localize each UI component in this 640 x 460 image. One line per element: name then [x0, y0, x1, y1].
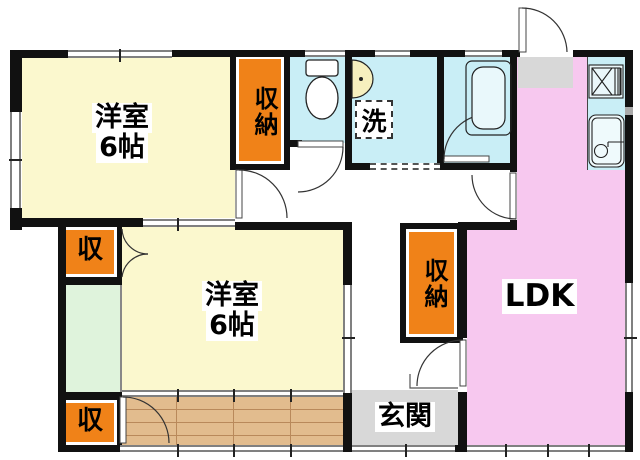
closet-tall-2-label: 収納 [415, 242, 447, 326]
room-name: 洋室 [202, 281, 262, 311]
closet-tall-1-label: 収納 [245, 70, 277, 154]
door-arc [239, 170, 287, 218]
wall [58, 277, 122, 285]
door-leaf [510, 173, 516, 219]
window [305, 50, 345, 57]
wall [625, 50, 633, 107]
entrance-label: 玄関 [355, 402, 455, 432]
ldk-label: LDK [487, 279, 592, 314]
wall [440, 163, 517, 170]
bedroom1-label: 洋室 6帖 [47, 103, 197, 163]
veranda-wood-floor [120, 397, 348, 445]
door-arc [298, 147, 343, 192]
wall [235, 222, 352, 230]
wall [58, 220, 66, 452]
room-size: 6帖 [96, 133, 148, 163]
window [465, 50, 502, 57]
window [625, 283, 633, 392]
bathroom-floor [444, 57, 510, 163]
room-size: 6帖 [206, 311, 258, 341]
kitchen-counter [587, 57, 627, 170]
wall [625, 115, 633, 283]
wall [343, 393, 352, 452]
wall [10, 50, 22, 112]
wall [58, 392, 122, 400]
wall [10, 218, 143, 227]
wall [510, 50, 517, 172]
ldk-floor-main [467, 230, 627, 447]
window [375, 50, 410, 57]
wall [58, 445, 120, 452]
door-leaf [519, 8, 526, 52]
door-leaf [460, 340, 466, 386]
wall [437, 50, 444, 163]
wall [458, 392, 467, 452]
wall [172, 50, 305, 57]
sliding-door [370, 163, 440, 170]
door-leaf [236, 170, 242, 218]
floor-plan: 洋室 6帖 洋室 6帖 LDK 玄関 洗 収納 収納 収 収 [0, 0, 640, 460]
wall [460, 222, 467, 338]
backdoor-landing [518, 57, 573, 88]
window [120, 445, 343, 452]
kitchen-vent [625, 107, 633, 115]
bedroom2-label: 洋室 6帖 [157, 281, 307, 341]
alcove-floor [66, 285, 122, 392]
door-arc [472, 175, 516, 219]
wall [343, 222, 352, 285]
room-name: 洋室 [92, 103, 152, 133]
wall [345, 50, 352, 170]
door-arc [522, 8, 567, 52]
sliding-door [343, 285, 352, 393]
alcove-edge [120, 285, 122, 392]
door-arc [417, 340, 463, 386]
sliding-door [122, 390, 343, 397]
sliding-door [143, 219, 235, 227]
wall [573, 50, 633, 57]
toilet-floor [290, 57, 345, 143]
closet-small-2-label: 収 [72, 407, 108, 436]
wall [625, 392, 633, 452]
entrance-door [352, 445, 455, 452]
laundry-label: 洗 [355, 100, 393, 139]
entrance-step [410, 374, 458, 388]
window [10, 112, 21, 208]
wall [290, 140, 302, 147]
wall [345, 163, 370, 170]
window [68, 50, 172, 58]
closet-small-1-label: 収 [72, 236, 108, 265]
window [467, 445, 625, 452]
